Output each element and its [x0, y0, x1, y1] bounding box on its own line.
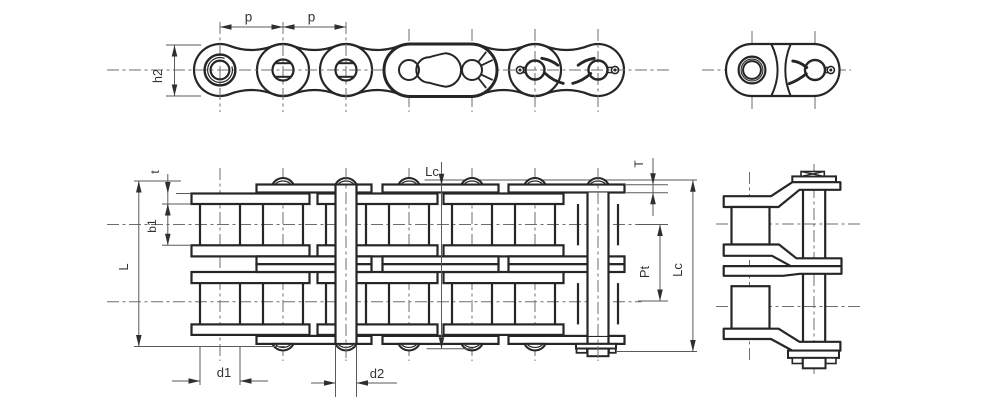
svg-text:T: T	[632, 160, 646, 168]
svg-text:h2: h2	[151, 69, 165, 83]
svg-text:p: p	[308, 10, 316, 25]
svg-text:L: L	[116, 263, 131, 270]
svg-text:b1: b1	[145, 219, 159, 233]
svg-text:Lc: Lc	[670, 263, 685, 277]
svg-text:d2: d2	[370, 366, 384, 381]
svg-text:Lc: Lc	[425, 164, 439, 179]
svg-text:d1: d1	[217, 365, 231, 380]
svg-text:Pt: Pt	[637, 265, 652, 278]
svg-text:p: p	[245, 10, 253, 25]
